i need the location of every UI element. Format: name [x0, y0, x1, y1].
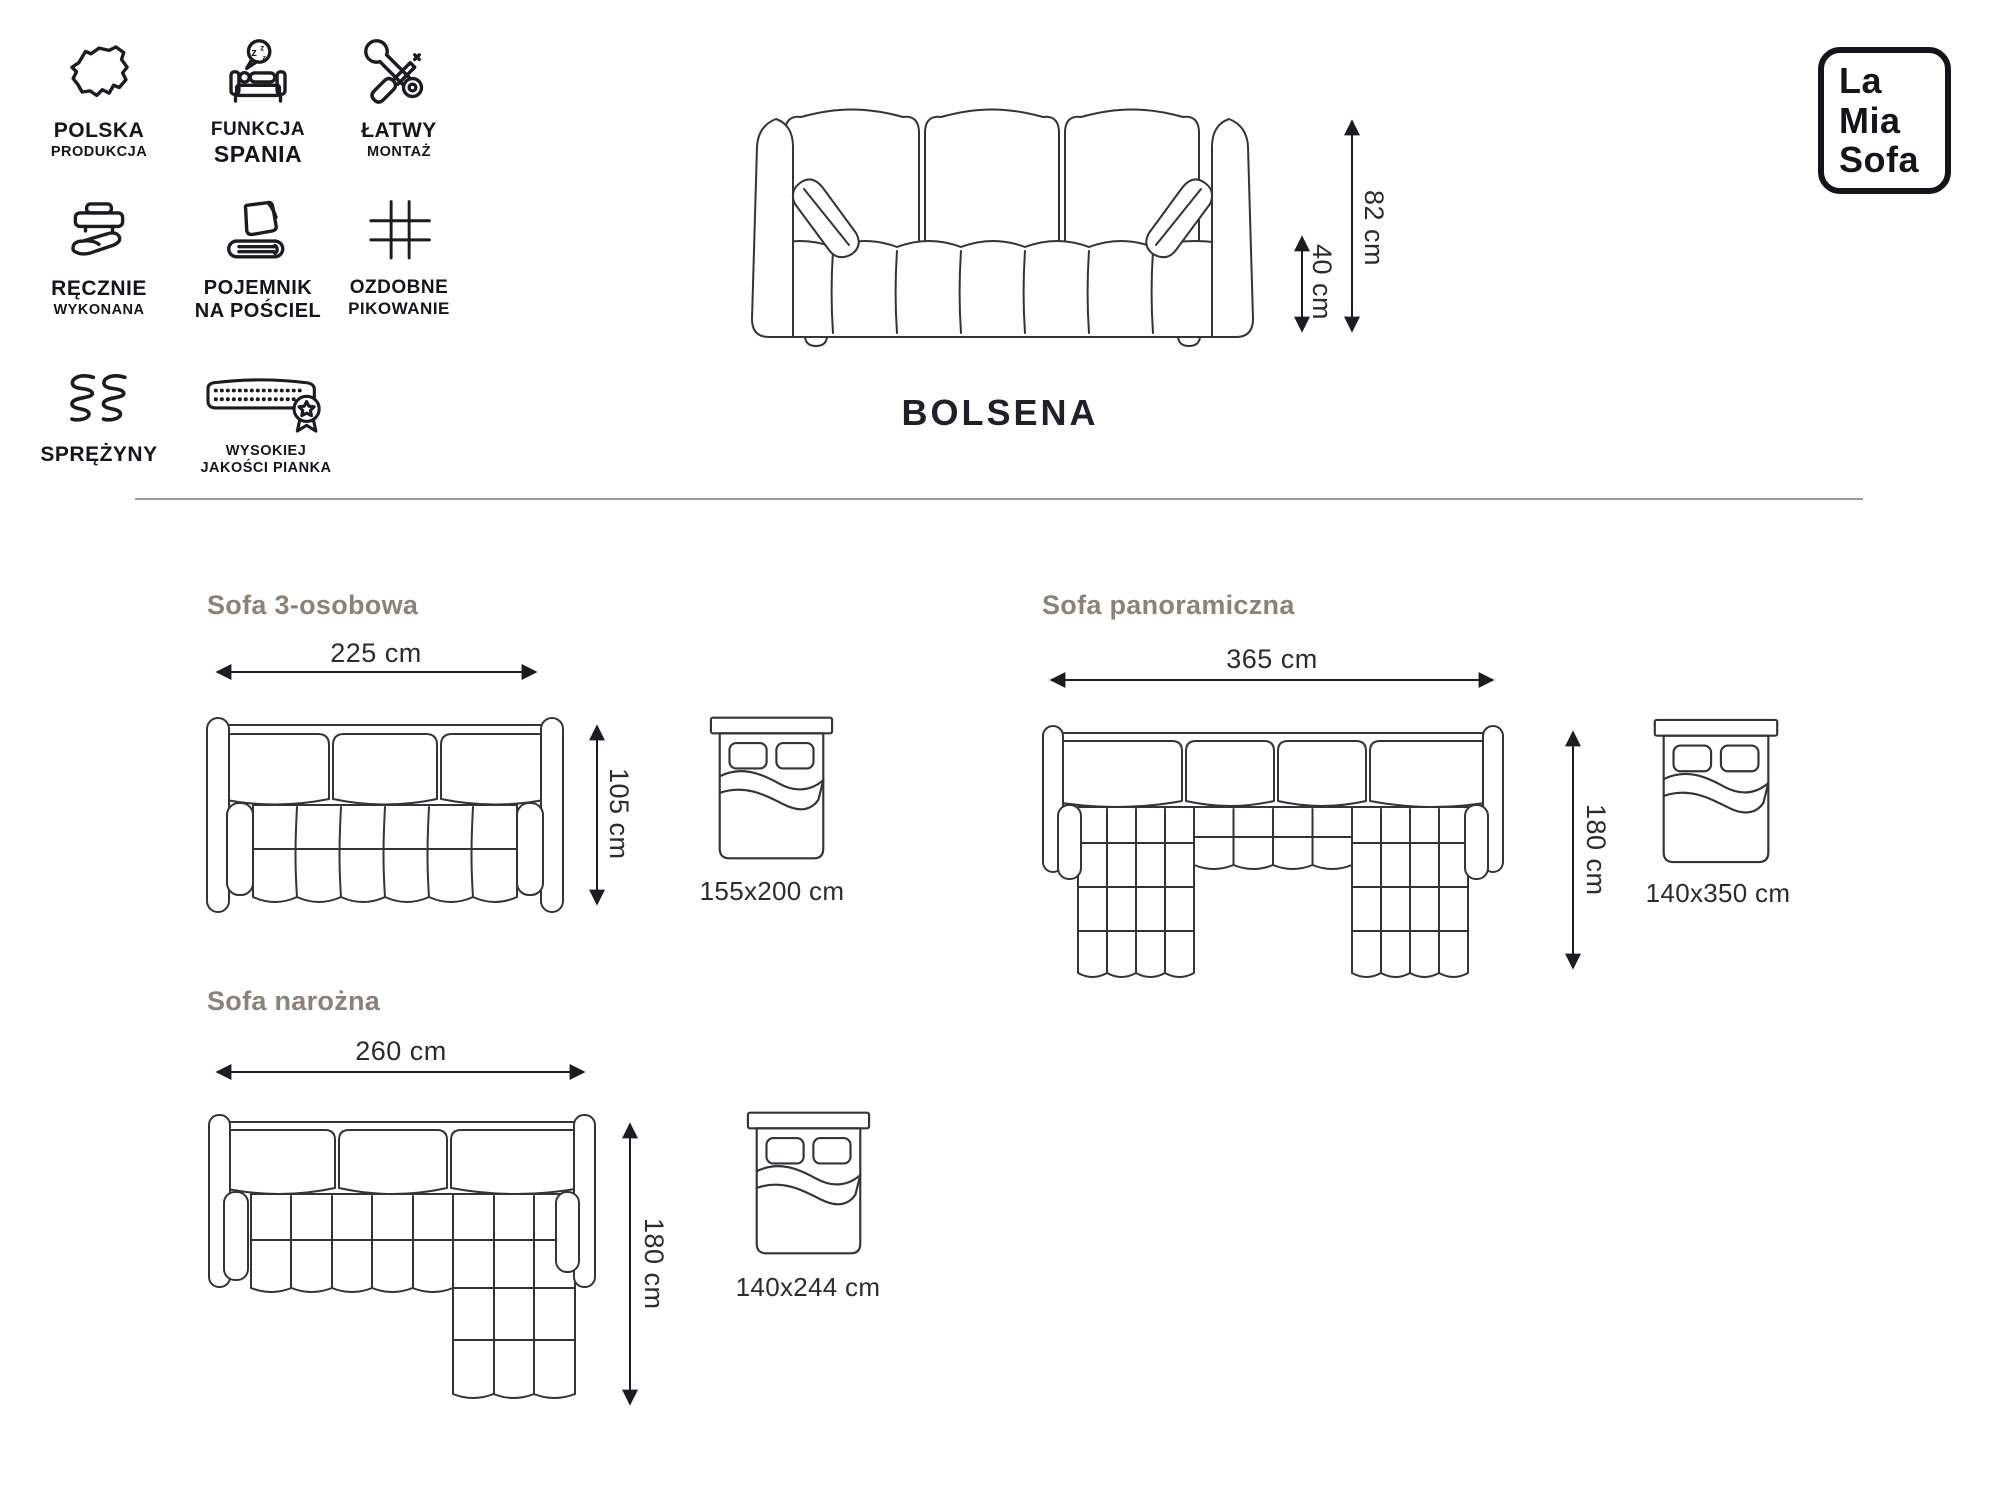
variant-title-corner: Sofa narożna	[207, 986, 380, 1017]
feature-label: RĘCZNIE	[21, 277, 177, 301]
feature-sublabel: JAKOŚCI PIANKA	[181, 459, 351, 477]
bed-drawing	[745, 1106, 872, 1262]
feature-ozdobne-pikowanie: OZDOBNE PIKOWANIE	[321, 196, 477, 320]
sofa-three-seater-top-drawing	[205, 715, 565, 920]
sofa-front-drawing	[745, 85, 1260, 347]
feature-recznie-wykonana: RĘCZNIE WYKONANA	[21, 196, 177, 319]
bed-size-label: 155x200 cm	[692, 876, 852, 907]
brand-line: Mia	[1839, 101, 1945, 141]
product-sheet: POLSKA PRODUKCJA z z z FUNKCJA SPANIA	[0, 0, 2000, 1500]
feature-label: POLSKA	[21, 119, 177, 143]
feature-sublabel: NA POŚCIEL	[180, 299, 336, 324]
svg-text:z: z	[260, 43, 264, 52]
feature-sublabel: WYKONANA	[21, 301, 177, 319]
depth-dimension-label: 180 cm	[1580, 804, 1611, 896]
width-dimension-label: 260 cm	[341, 1036, 461, 1067]
bed-size-label: 140x350 cm	[1638, 878, 1798, 909]
feature-pojemnik-na-posciel: POJEMNIK NA POŚCIEL	[180, 196, 336, 324]
feature-label: WYSOKIEJ	[181, 443, 351, 459]
feature-sublabel: SPANIA	[180, 140, 336, 169]
variant-title-panoramic: Sofa panoramiczna	[1042, 590, 1295, 621]
depth-dimension-arrow	[622, 1115, 638, 1413]
bed-drawing	[1651, 714, 1781, 870]
feature-sprezyny: SPRĘŻYNY	[21, 368, 177, 467]
depth-dimension-label: 180 cm	[638, 1218, 669, 1310]
width-dimension-arrow	[1042, 672, 1502, 688]
handmade-icon	[63, 196, 135, 268]
product-title: BOLSENA	[850, 392, 1150, 434]
depth-dimension-arrow	[1565, 723, 1581, 977]
poland-map-icon	[63, 38, 135, 110]
svg-text:z: z	[251, 47, 257, 59]
brand-line: Sofa	[1839, 140, 1945, 180]
quilting-icon	[363, 196, 435, 268]
feature-label: OZDOBNE	[321, 277, 477, 298]
width-dimension-arrow	[208, 1064, 593, 1080]
feature-sublabel: PIKOWANIE	[321, 298, 477, 319]
sofa-corner-top-drawing	[207, 1112, 597, 1412]
width-dimension-label: 365 cm	[1212, 644, 1332, 675]
depth-dimension-label: 105 cm	[603, 768, 634, 860]
easy-assembly-icon	[363, 38, 435, 110]
sleep-function-icon: z z z	[222, 38, 294, 110]
brand-line: La	[1839, 61, 1945, 101]
bedding-storage-icon	[222, 196, 294, 268]
feature-wysokiej-jakosci-pianka: WYSOKIEJ JAKOŚCI PIANKA	[181, 376, 351, 477]
bed-drawing	[708, 711, 835, 867]
section-divider	[135, 498, 1863, 500]
bed-size-label: 140x244 cm	[728, 1272, 888, 1303]
feature-label: FUNKCJA	[180, 119, 336, 140]
feature-polska-produkcja: POLSKA PRODUKCJA	[21, 38, 177, 161]
brand-logo: La Mia Sofa	[1818, 47, 1951, 194]
feature-sublabel: PRODUKCJA	[21, 143, 177, 161]
feature-label: SPRĘŻYNY	[21, 443, 177, 467]
feature-label: POJEMNIK	[180, 277, 336, 299]
feature-latwy-montaz: ŁATWY MONTAŻ	[321, 38, 477, 161]
feature-sublabel: MONTAŻ	[321, 143, 477, 161]
height-dimension-label: 82 cm	[1358, 190, 1389, 266]
foam-quality-icon	[201, 376, 331, 434]
variant-title-three-seater: Sofa 3-osobowa	[207, 590, 418, 621]
feature-label: ŁATWY	[321, 119, 477, 143]
width-dimension-arrow	[208, 664, 545, 680]
seat-height-dimension-label: 40 cm	[1306, 244, 1337, 320]
feature-funkcja-spania: z z z FUNKCJA SPANIA	[180, 38, 336, 169]
springs-icon	[63, 368, 135, 434]
sofa-panoramic-top-drawing	[1042, 723, 1504, 988]
